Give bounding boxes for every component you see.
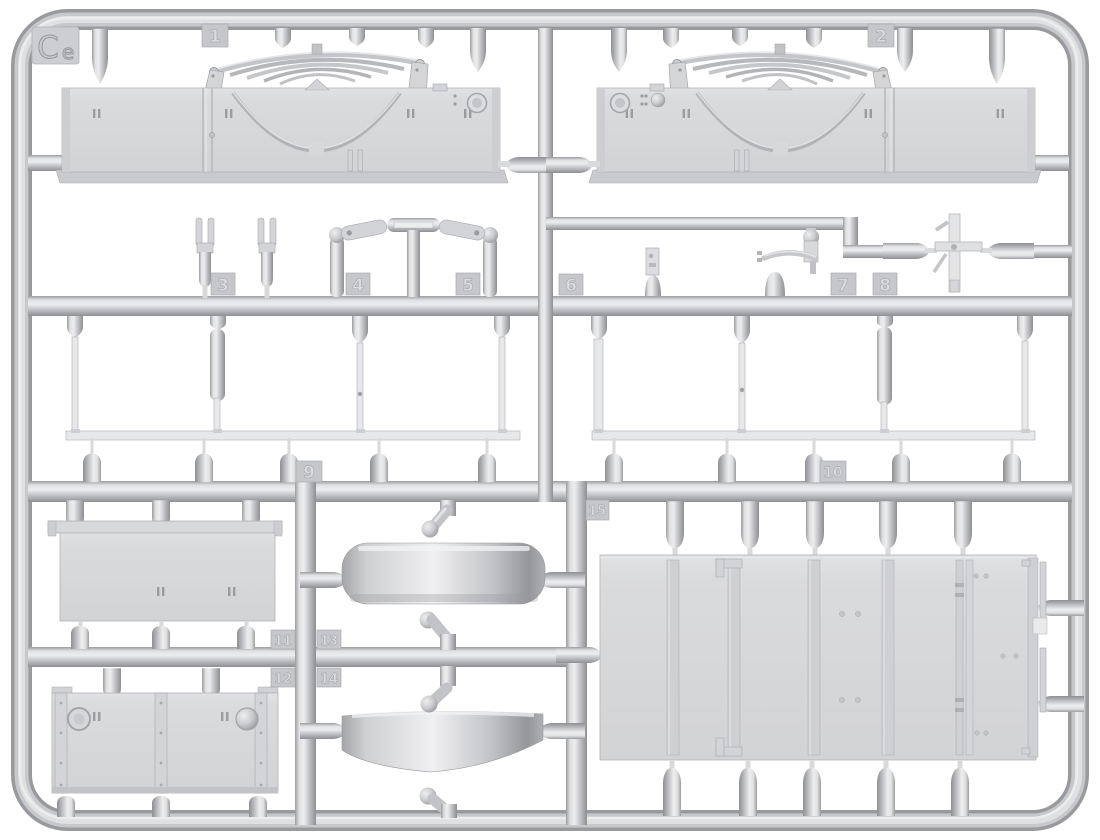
svg-text:14: 14 — [320, 672, 338, 687]
part-14-band — [300, 711, 585, 772]
svg-text:11: 11 — [274, 634, 292, 649]
part-tag-10: 10 — [820, 461, 846, 482]
part-tag-7: 7 — [831, 273, 856, 296]
part-7-lever — [757, 228, 819, 296]
part-15-bottom-gates — [663, 760, 969, 816]
part-1-side-panel-assembly — [28, 28, 508, 183]
part-10-rod-group — [591, 316, 1035, 482]
part-tag-2: 2 — [868, 24, 894, 47]
sprue-code-plate: C e — [32, 27, 79, 66]
part-tag-4: 4 — [346, 273, 370, 296]
part-tag-3: 3 — [211, 273, 235, 296]
svg-text:13: 13 — [320, 634, 338, 649]
svg-text:2: 2 — [875, 27, 887, 47]
svg-text:7: 7 — [837, 276, 849, 296]
part-13-band — [300, 543, 585, 604]
part-tag-9: 9 — [296, 461, 322, 483]
runner-vertical-center — [538, 28, 553, 502]
part-9-rail — [66, 431, 520, 440]
part-tag-6: 6 — [559, 274, 583, 296]
runner-vertical-left — [295, 481, 316, 825]
svg-text:3: 3 — [217, 276, 229, 296]
part-9-rod-group — [66, 316, 520, 482]
svg-text:10: 10 — [823, 465, 843, 481]
side-panel — [56, 79, 508, 183]
svg-text:4: 4 — [352, 276, 364, 296]
part-tag-8: 8 — [873, 273, 897, 296]
part-tag-5: 5 — [456, 273, 480, 296]
svg-text:9: 9 — [303, 463, 315, 483]
part-15-top-gates — [666, 501, 972, 556]
part-tag-13: 13 — [317, 630, 341, 649]
part-tag-11: 11 — [271, 630, 295, 649]
svg-text:8: 8 — [879, 276, 891, 296]
svg-text:12: 12 — [274, 672, 292, 687]
svg-text:6: 6 — [565, 276, 577, 296]
part-tag-14: 14 — [317, 668, 341, 687]
svg-text:1: 1 — [209, 27, 221, 47]
sprue-scene: C e — [0, 0, 1100, 840]
part-10-lower-gates — [605, 438, 1021, 482]
svg-text:15: 15 — [588, 504, 606, 519]
part-6-bracket — [645, 248, 661, 296]
part-tag-15: 15 — [586, 500, 609, 520]
part-3-forks — [196, 218, 276, 298]
part-11-board — [48, 500, 282, 649]
svg-text:5: 5 — [462, 276, 474, 296]
part-9-lower-gates — [83, 438, 496, 482]
part-15-floor-panel — [556, 501, 1084, 816]
part-tag-1: 1 — [202, 24, 228, 47]
part-2-extra-gate — [897, 28, 913, 72]
center-gate-left — [506, 157, 552, 173]
sprue-code-letter: C — [37, 30, 59, 66]
part-tag-12: 12 — [271, 668, 295, 687]
sprue-code-suffix: e — [62, 40, 74, 64]
part-8-cross-linkage — [883, 214, 1034, 292]
sprue-photo: C e — [0, 0, 1100, 840]
center-gate-right — [546, 157, 592, 173]
part-12-tailgate — [52, 668, 278, 817]
